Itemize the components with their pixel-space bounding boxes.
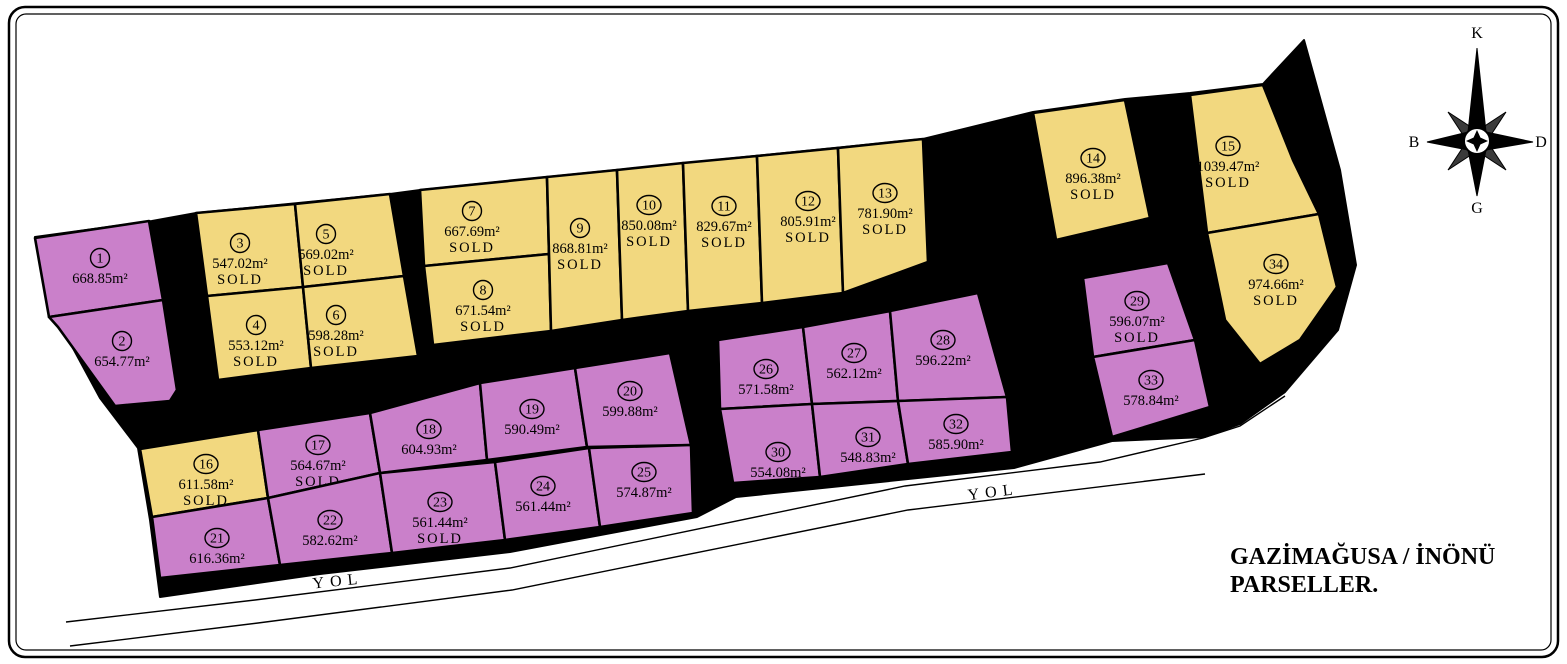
parcel-8: 8671.54m²SOLD (424, 254, 551, 345)
parcel-number-label: 24 (536, 480, 550, 495)
parcel-number-label: 34 (1269, 258, 1283, 273)
parcel-area-label: 582.62m² (302, 533, 358, 549)
parcel-area-label: 604.93m² (401, 442, 457, 458)
parcel-sold-label: SOLD (1205, 175, 1251, 191)
parcel-24: 24561.44m² (495, 448, 600, 540)
parcel-sold-label: SOLD (417, 531, 463, 547)
parcel-area-label: 585.90m² (928, 437, 984, 453)
parcel-area-label: 868.81m² (552, 241, 608, 257)
parcel-27: 27562.12m² (803, 311, 898, 404)
map-title-line1: GAZİMAĞUSA / İNÖNÜ (1230, 543, 1495, 570)
parcel-area-label: 671.54m² (455, 303, 511, 319)
parcel-number-label: 22 (323, 514, 337, 529)
parcel-sold-label: SOLD (217, 272, 263, 288)
parcel-number-label: 7 (469, 205, 476, 220)
parcel-11: 11829.67m²SOLD (683, 156, 762, 311)
parcel-number-label: 12 (801, 195, 815, 210)
parcel-32: 32585.90m² (898, 397, 1012, 464)
parcel-area-label: 805.91m² (780, 214, 836, 230)
parcel-19: 19590.49m² (480, 368, 587, 460)
parcel-area-label: 590.49m² (504, 422, 560, 438)
parcel-area-label: 896.38m² (1065, 171, 1121, 187)
parcel-number-label: 13 (878, 187, 892, 202)
parcel-number-label: 19 (525, 403, 539, 418)
parcel-area-label: 554.08m² (750, 465, 806, 481)
parcel-sold-label: SOLD (785, 230, 831, 246)
parcel-sold-label: SOLD (449, 240, 495, 256)
parcel-area-label: 548.83m² (840, 450, 896, 466)
parcel-area-label: 553.12m² (228, 338, 284, 354)
parcel-sold-label: SOLD (557, 257, 603, 273)
parcel-number-label: 9 (577, 222, 584, 237)
parcel-number-label: 28 (936, 334, 950, 349)
parcel-number-label: 23 (433, 496, 447, 511)
parcel-number-label: 6 (333, 309, 340, 324)
parcel-sold-label: SOLD (1070, 187, 1116, 203)
parcel-number-label: 16 (199, 458, 213, 473)
parcel-area-label: 569.02m² (298, 247, 354, 263)
parcel-26: 26571.58m² (718, 327, 812, 409)
parcel-area-label: 598.28m² (308, 328, 364, 344)
compass-main-star (1427, 48, 1533, 196)
parcel-sold-label: SOLD (1114, 330, 1160, 346)
parcel-area-label: 974.66m² (1248, 277, 1304, 293)
parcel-area-label: 562.12m² (826, 366, 882, 382)
parcel-number-label: 27 (847, 347, 861, 362)
parcel-number-label: 17 (311, 439, 325, 454)
compass-north-label: K (1471, 25, 1483, 42)
parcel-2-shape (49, 300, 177, 406)
compass-west-label: B (1409, 134, 1420, 151)
parcel-number-label: 26 (759, 363, 773, 378)
parcel-3: 3547.02m²SOLD (196, 204, 303, 296)
parcel-number-label: 29 (1130, 295, 1144, 310)
parcel-area-label: 571.58m² (738, 382, 794, 398)
parcel-area-label: 596.07m² (1109, 314, 1165, 330)
parcel-area-label: 578.84m² (1123, 393, 1179, 409)
parcel-area-label: 599.88m² (602, 404, 658, 420)
parcel-31: 31548.83m² (812, 401, 908, 477)
parcel-area-label: 574.87m² (616, 485, 672, 501)
parcel-10: 10850.08m²SOLD (617, 163, 688, 320)
parcel-area-label: 547.02m² (212, 256, 268, 272)
parcel-sold-label: SOLD (460, 319, 506, 335)
parcel-number-label: 20 (623, 385, 637, 400)
parcel-number-label: 18 (422, 423, 436, 438)
parcel-number-label: 21 (210, 532, 224, 547)
parcel-number-label: 5 (323, 228, 330, 243)
parcel-area-label: 1039.47m² (1197, 159, 1260, 175)
parcel-25: 25574.87m² (589, 445, 693, 527)
parcel-sold-label: SOLD (313, 344, 359, 360)
parcel-30: 30554.08m² (720, 404, 820, 483)
parcel-number-label: 31 (861, 431, 875, 446)
map-title: GAZİMAĞUSA / İNÖNÜ PARSELLER. (1230, 543, 1495, 598)
parcel-number-label: 15 (1221, 140, 1235, 155)
parcel-2: 2654.77m² (49, 300, 177, 406)
parcel-area-label: 667.69m² (444, 224, 500, 240)
parcel-number-label: 30 (771, 446, 785, 461)
parcel-area-label: 611.58m² (179, 477, 235, 493)
parcel-4: 4553.12m²SOLD (207, 287, 311, 380)
parcel-area-label: 850.08m² (621, 218, 677, 234)
parcel-area-label: 596.22m² (915, 353, 971, 369)
map-title-line2: PARSELLER. (1230, 572, 1378, 598)
parcel-area-label: 561.44m² (515, 499, 571, 515)
parcel-sold-label: SOLD (303, 263, 349, 279)
parcel-area-label: 616.36m² (189, 551, 245, 567)
parcel-area-label: 829.67m² (696, 219, 752, 235)
parcel-area-label: 564.67m² (290, 458, 346, 474)
parcel-5: 5569.02m²SOLD (295, 194, 404, 287)
parcel-12: 12805.91m²SOLD (757, 148, 843, 303)
parcel-map-page: 1668.85m²2654.77m²3547.02m²SOLD4553.12m²… (0, 0, 1567, 664)
parcel-number-label: 33 (1144, 374, 1158, 389)
parcel-number-label: 3 (237, 237, 244, 252)
parcel-sold-label: SOLD (701, 235, 747, 251)
parcel-20: 20599.88m² (575, 353, 691, 447)
parcel-number-label: 4 (253, 319, 260, 334)
parcel-number-label: 11 (717, 200, 730, 215)
parcel-6: 6598.28m²SOLD (303, 276, 418, 368)
compass-south-label: G (1471, 200, 1483, 217)
compass-east-label: D (1535, 134, 1547, 151)
parcel-sold-label: SOLD (626, 234, 672, 250)
parcel-area-label: 654.77m² (94, 354, 150, 370)
parcel-number-label: 25 (637, 466, 651, 481)
parcel-number-label: 14 (1086, 152, 1100, 167)
parcel-number-label: 8 (480, 284, 487, 299)
parcel-number-label: 2 (119, 335, 126, 350)
parcel-sold-label: SOLD (1253, 293, 1299, 309)
parcel-area-label: 561.44m² (412, 515, 468, 531)
parcel-23: 23561.44m²SOLD (380, 462, 505, 553)
parcel-number-label: 1 (97, 252, 104, 267)
parcel-9: 9868.81m²SOLD (547, 170, 622, 331)
road-label-southeast: YOL (967, 481, 1020, 504)
parcel-area-label: 781.90m² (857, 206, 913, 222)
parcel-area-label: 668.85m² (72, 271, 128, 287)
parcel-sold-label: SOLD (862, 222, 908, 238)
parcel-map-canvas: 1668.85m²2654.77m²3547.02m²SOLD4553.12m²… (0, 0, 1567, 664)
compass-rose: K G B D (1409, 25, 1547, 217)
parcel-7: 7667.69m²SOLD (420, 177, 549, 266)
parcel-number-label: 32 (949, 418, 963, 433)
parcel-sold-label: SOLD (233, 354, 279, 370)
parcel-number-label: 10 (642, 199, 656, 214)
